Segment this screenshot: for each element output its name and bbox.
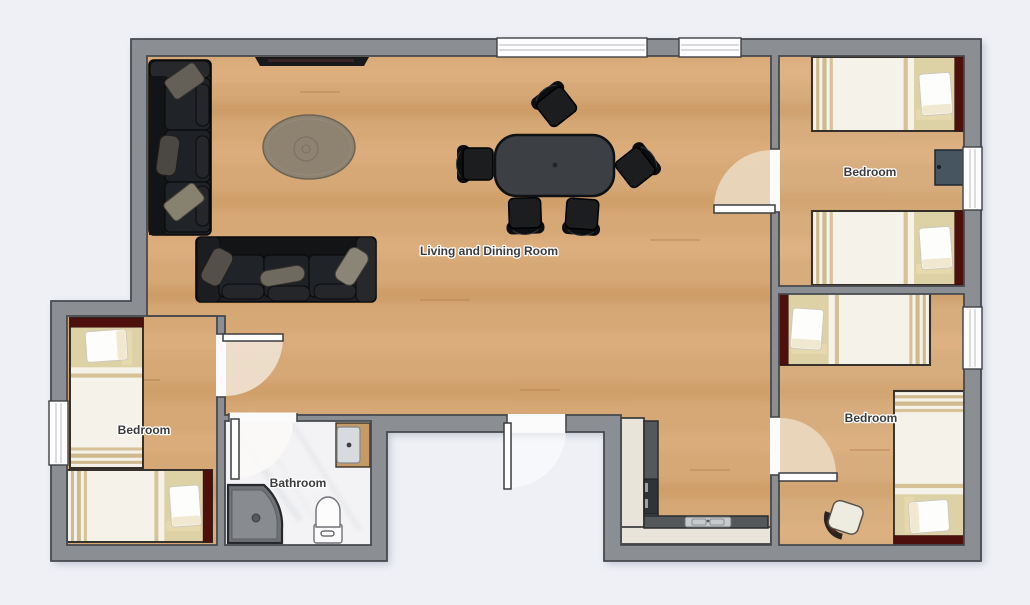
svg-text:Living and Dining Room: Living and Dining Room [420,244,558,258]
svg-text:Bedroom: Bedroom [118,423,171,437]
svg-text:Bathroom: Bathroom [270,476,327,490]
svg-text:Bedroom: Bedroom [845,411,898,425]
svg-text:Bedroom: Bedroom [844,165,897,179]
